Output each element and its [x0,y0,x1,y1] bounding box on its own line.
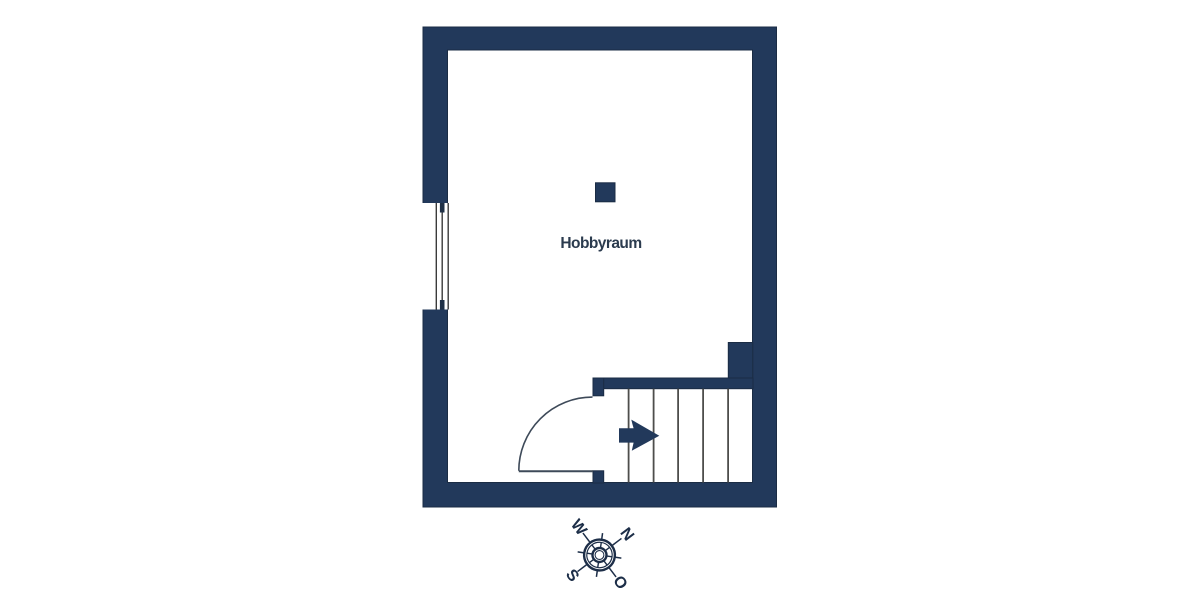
svg-text:Hobbyraum: Hobbyraum [560,235,641,252]
